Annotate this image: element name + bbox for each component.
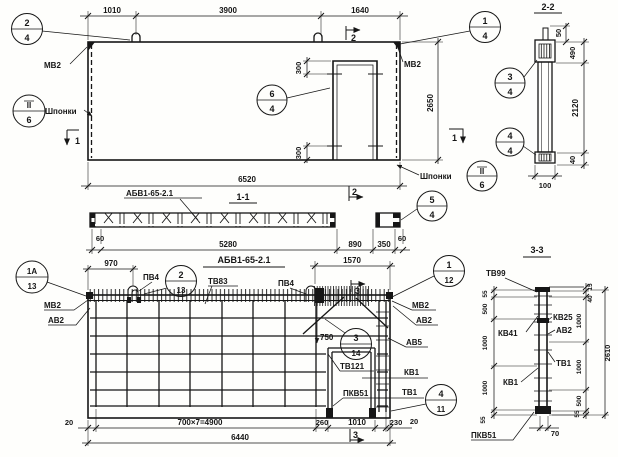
- label-kv1: КВ1: [404, 368, 420, 377]
- callout-top: 1: [446, 260, 451, 270]
- strip-end-mark: [393, 222, 400, 227]
- cut-label: 3: [353, 430, 358, 440]
- callout-bottom: 6: [26, 115, 31, 125]
- label-pkv51: ПКВ51: [343, 389, 369, 398]
- dim-300-bottom: 300: [294, 147, 303, 160]
- cut-label: 1: [452, 133, 457, 143]
- column-rungs: [534, 296, 552, 401]
- av2-leader: [548, 330, 555, 334]
- section-1-1: АБВ1-65-2.1 1-1 2 60 5280 890 350 60: [86, 186, 447, 254]
- label-tv121: ТВ121: [340, 362, 365, 371]
- panel-drawing-svg: 1010 3900 1640 2650 6520 300 300 МВ2: [0, 0, 618, 457]
- dim-4900: 700×7=4900: [178, 418, 223, 427]
- callout-leader: [42, 31, 130, 40]
- callout-bottom: 4: [482, 31, 487, 41]
- extension-lines: [549, 291, 589, 415]
- strip-end-mark: [393, 213, 400, 218]
- dim-20-right: 20: [410, 417, 418, 426]
- strip-end-mark: [90, 213, 95, 218]
- dim-230: 230: [390, 418, 403, 427]
- callout-1-12: 1 12: [392, 256, 465, 298]
- dim-20-left: 20: [65, 418, 73, 427]
- dim-1010: 1010: [348, 418, 366, 427]
- callout-1-4: 1 4: [400, 12, 501, 45]
- cut-label: 2: [351, 33, 356, 43]
- callout-top: 3: [507, 72, 512, 82]
- panel-outline: [88, 295, 390, 418]
- callout-top: II: [27, 101, 31, 110]
- callout-leader: [325, 319, 345, 333]
- callout-6-4: 6 4: [257, 85, 330, 115]
- label-mv2-right: МВ2: [404, 60, 421, 69]
- callout-bottom: 4: [507, 87, 512, 97]
- label-tv1: ТВ1: [402, 388, 418, 397]
- dim-1000-b: 1000: [482, 380, 489, 395]
- dim-2610: 2610: [603, 345, 612, 362]
- section-title: 3-3: [530, 245, 543, 255]
- section33-right-dims: 15 40 1000 1000 500 55: [549, 283, 594, 419]
- dim-2120: 2120: [571, 99, 580, 117]
- panel-outline: [88, 42, 400, 160]
- plan-top-dims: 1010 3900 1640: [80, 6, 408, 40]
- dim-6440: 6440: [231, 433, 249, 442]
- reinforcement-plan: АБВ1-65-2.1 970: [16, 255, 465, 446]
- label-kv1: КВ1: [503, 378, 519, 387]
- dim-890: 890: [348, 240, 362, 249]
- dim-60-left: 60: [96, 234, 104, 243]
- dim-1570: 1570: [310, 256, 395, 290]
- callout-1a-13: 1А 13: [16, 261, 86, 296]
- callout-bottom: 6: [479, 180, 484, 190]
- callout-bottom: 4: [269, 104, 274, 114]
- callout-top: 3: [353, 333, 358, 343]
- label-av2: АВ2: [556, 326, 573, 335]
- dim-55-bottom: 55: [480, 416, 487, 424]
- cut-label: 1: [75, 136, 80, 146]
- label-tv83: ТВ83: [208, 277, 228, 286]
- section33-left-dims: 55 500 1000 1000 55: [480, 286, 537, 424]
- part-label: АБВ1-65-2.1: [126, 189, 174, 198]
- label-tv1: ТВ1: [556, 359, 572, 368]
- callout-4-4: 4 4: [496, 128, 536, 156]
- callout-bottom: 13: [177, 286, 186, 295]
- top-key-hatch: [539, 44, 551, 58]
- dim-55: 55: [574, 410, 581, 418]
- dim-70: 70: [551, 429, 559, 438]
- cut-mark-2-top: 2: [346, 26, 360, 43]
- label-kv41: КВ41: [498, 329, 518, 338]
- dim-500: 500: [576, 395, 583, 406]
- label-tv99: ТВ99: [486, 269, 506, 278]
- cut-label: 2: [352, 187, 357, 197]
- callout-bottom: 11: [437, 405, 446, 414]
- label-shponki-left: Шпонки: [45, 107, 77, 116]
- column-bottom-mark: [535, 406, 551, 414]
- shponki-right-leader: [397, 165, 419, 175]
- dim-300-top: 300: [294, 62, 303, 75]
- callout-top: 1: [482, 16, 487, 26]
- dim-500: 500: [482, 303, 489, 314]
- label-pv4-1: ПВ4: [143, 273, 160, 282]
- dim-ticks: [563, 23, 587, 168]
- cut-mark-1-left: 1: [67, 130, 80, 146]
- corner-mark-right: [386, 292, 393, 299]
- callout-top: 1А: [27, 267, 37, 276]
- cut-mark-1-right: 1: [449, 129, 463, 143]
- callout-top: 4: [438, 389, 443, 399]
- plan-width-dim: 6520: [81, 162, 407, 190]
- opening-outline: [333, 61, 377, 160]
- kv1-leader: [521, 368, 538, 382]
- callout-bottom: 14: [352, 349, 361, 358]
- strip-end-mark: [330, 213, 335, 218]
- dim-970: 970: [83, 259, 138, 290]
- dim-text: 970: [104, 259, 118, 268]
- label-mv2-left: МВ2: [44, 61, 61, 70]
- dim-2650: 2650: [426, 94, 435, 112]
- strip-pattern: [90, 213, 335, 227]
- callout-top: 2: [178, 270, 183, 280]
- section22-dims: 50 490 2120 40 100: [528, 23, 589, 190]
- dim-50: 50: [554, 29, 563, 37]
- dim-350: 350: [377, 240, 391, 249]
- column-rails: [539, 290, 547, 412]
- dim-1000-a: 1000: [576, 313, 583, 328]
- drawing-sheet: 1010 3900 1640 2650 6520 300 300 МВ2: [0, 0, 618, 457]
- hairpin-blob: [315, 288, 324, 303]
- callout-leader: [524, 60, 537, 77]
- callout-key-right: II 6: [467, 161, 497, 191]
- section33-bottom-dim: 70: [529, 416, 559, 438]
- label-av5: АВ5: [406, 338, 423, 347]
- label-kv25: КВ25: [553, 313, 573, 322]
- callout-leader: [401, 209, 417, 220]
- callout-3-4: 3 4: [495, 60, 537, 98]
- dim-5280: 5280: [219, 240, 237, 249]
- kv41-leader: [526, 316, 538, 332]
- reinf-bottom-dims: 20 700×7=4900 260 1010 230 20 6440: [65, 409, 418, 446]
- bottom-key-hatch: [539, 154, 551, 161]
- dim-text: 1570: [343, 256, 361, 265]
- section-3-3: 3-3 ТВ99 55 500 1000 1000 55 15 40 1: [471, 245, 612, 440]
- cut-mark-3-bottom: 3: [350, 429, 364, 442]
- opening-corner-mark: [369, 408, 376, 418]
- cut-mark-2-bottom: 2: [349, 186, 363, 201]
- column-top-cap: [535, 287, 550, 292]
- corner-anchor-left: [88, 42, 95, 51]
- extension-lines-100: [535, 165, 555, 180]
- strip-end-mark: [330, 222, 335, 227]
- callout-leader: [392, 276, 434, 297]
- tv1-leader: [548, 352, 555, 362]
- callout-top: 5: [429, 195, 434, 205]
- corner-mark-left: [86, 292, 93, 299]
- callout-bottom: 12: [445, 276, 454, 285]
- label-av2-right: АВ2: [416, 316, 433, 325]
- dim-100: 100: [539, 181, 552, 190]
- plan-view: 1010 3900 1640 2650 6520 300 300 МВ2: [12, 6, 501, 191]
- callout-leader: [523, 146, 536, 155]
- dim-60-right: 60: [398, 234, 406, 243]
- opening-corner-mark: [326, 408, 333, 418]
- callout-bottom: 13: [28, 282, 37, 291]
- strip-end-mark: [376, 213, 380, 227]
- label-pkv51: ПКВ51: [471, 431, 497, 440]
- column-body: [538, 62, 552, 152]
- opening-anchor-ticks: [327, 74, 383, 146]
- column-inner-lines: [542, 62, 549, 152]
- dim-490: 490: [568, 47, 577, 60]
- dim-55-top: 55: [482, 290, 489, 298]
- label-av2-left: АВ2: [48, 316, 65, 325]
- hairpin-mark: [127, 297, 131, 303]
- callout-bottom: 4: [507, 146, 512, 156]
- callout-bottom: 4: [429, 210, 434, 220]
- opening-dims: 300 300: [294, 57, 331, 163]
- callout-leader: [391, 404, 426, 411]
- label-mv2-left: МВ2: [44, 301, 61, 310]
- plan-height-dim: 2650: [402, 38, 443, 164]
- pkv51-leader: [333, 398, 380, 406]
- dim-text: 750: [320, 333, 334, 342]
- strip-end-mark: [90, 222, 95, 227]
- top-hook: [543, 28, 548, 40]
- dim-260: 260: [316, 418, 329, 427]
- callout-top: 6: [269, 89, 274, 99]
- dim-40: 40: [587, 295, 594, 303]
- hairpin-mark: [137, 297, 141, 303]
- label-shponki-right: Шпонки: [420, 172, 452, 181]
- callout-top: 2: [24, 18, 29, 28]
- callout-top: 4: [507, 131, 512, 141]
- dim-15: 15: [587, 283, 594, 291]
- section-title: 1-1: [236, 192, 249, 202]
- dim-1640: 1640: [351, 6, 369, 15]
- dim-1000-b: 1000: [576, 359, 583, 374]
- callout-4-11: 4 11: [391, 385, 457, 416]
- callout-key-left: II 6: [13, 95, 45, 127]
- label-pv4-2: ПВ4: [278, 279, 295, 288]
- section-title: 2-2: [541, 2, 554, 12]
- section-2-2: 2-2 50 490 2120 40 100 3 4: [495, 2, 589, 190]
- callout-top: II: [480, 167, 484, 176]
- dim-1010: 1010: [103, 6, 121, 15]
- section11-dims: 60 5280 890 350 60: [86, 229, 410, 254]
- callout-bottom: 4: [24, 33, 29, 43]
- cut-label: 3: [355, 286, 360, 296]
- extension-lines: [491, 290, 537, 415]
- dim-40: 40: [568, 156, 577, 164]
- dim-3900: 3900: [219, 6, 237, 15]
- label-mv2-right: МВ2: [412, 301, 429, 310]
- callout-5-4: 5 4: [401, 191, 447, 221]
- dim-1000-a: 1000: [482, 335, 489, 350]
- plan-title: АБВ1-65-2.1: [218, 255, 271, 265]
- callout-leader: [287, 88, 330, 98]
- extension-lines: [315, 261, 390, 290]
- mv2-left-leader: [70, 47, 87, 64]
- dim-6520: 6520: [238, 175, 256, 184]
- opening-inner-line: [337, 65, 373, 160]
- callout-leader: [47, 282, 86, 296]
- callout-2-4: 2 4: [12, 14, 131, 45]
